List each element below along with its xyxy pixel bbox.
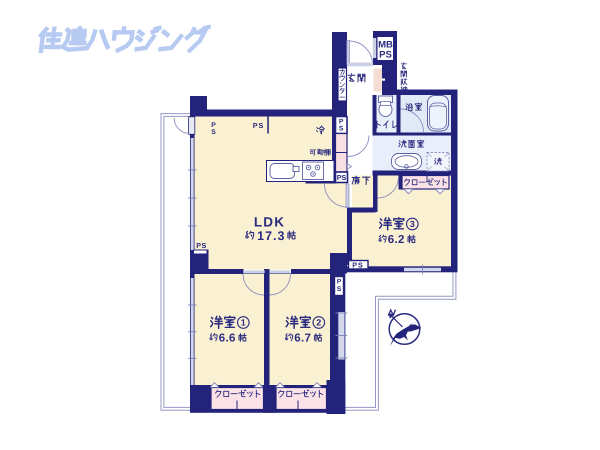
svg-text:S: S	[337, 286, 342, 293]
svg-text:PS: PS	[379, 50, 392, 61]
svg-text:3: 3	[410, 219, 415, 229]
svg-text:2: 2	[316, 318, 321, 328]
svg-text:P: P	[211, 122, 216, 129]
svg-text:S: S	[339, 126, 344, 133]
svg-text:1: 1	[241, 318, 246, 328]
svg-text:P: P	[337, 279, 342, 286]
svg-text:S: S	[211, 129, 216, 136]
svg-text:17.3: 17.3	[257, 229, 285, 243]
svg-text:6.2: 6.2	[388, 234, 405, 246]
svg-text:PS: PS	[196, 241, 207, 250]
svg-text:LDK: LDK	[254, 215, 285, 230]
svg-text:P: P	[339, 119, 344, 126]
svg-text:6.7: 6.7	[294, 333, 311, 345]
svg-text:PS: PS	[253, 121, 265, 130]
svg-text:PS: PS	[352, 261, 364, 270]
svg-text:PS: PS	[337, 173, 347, 182]
svg-text:6.6: 6.6	[219, 333, 236, 345]
